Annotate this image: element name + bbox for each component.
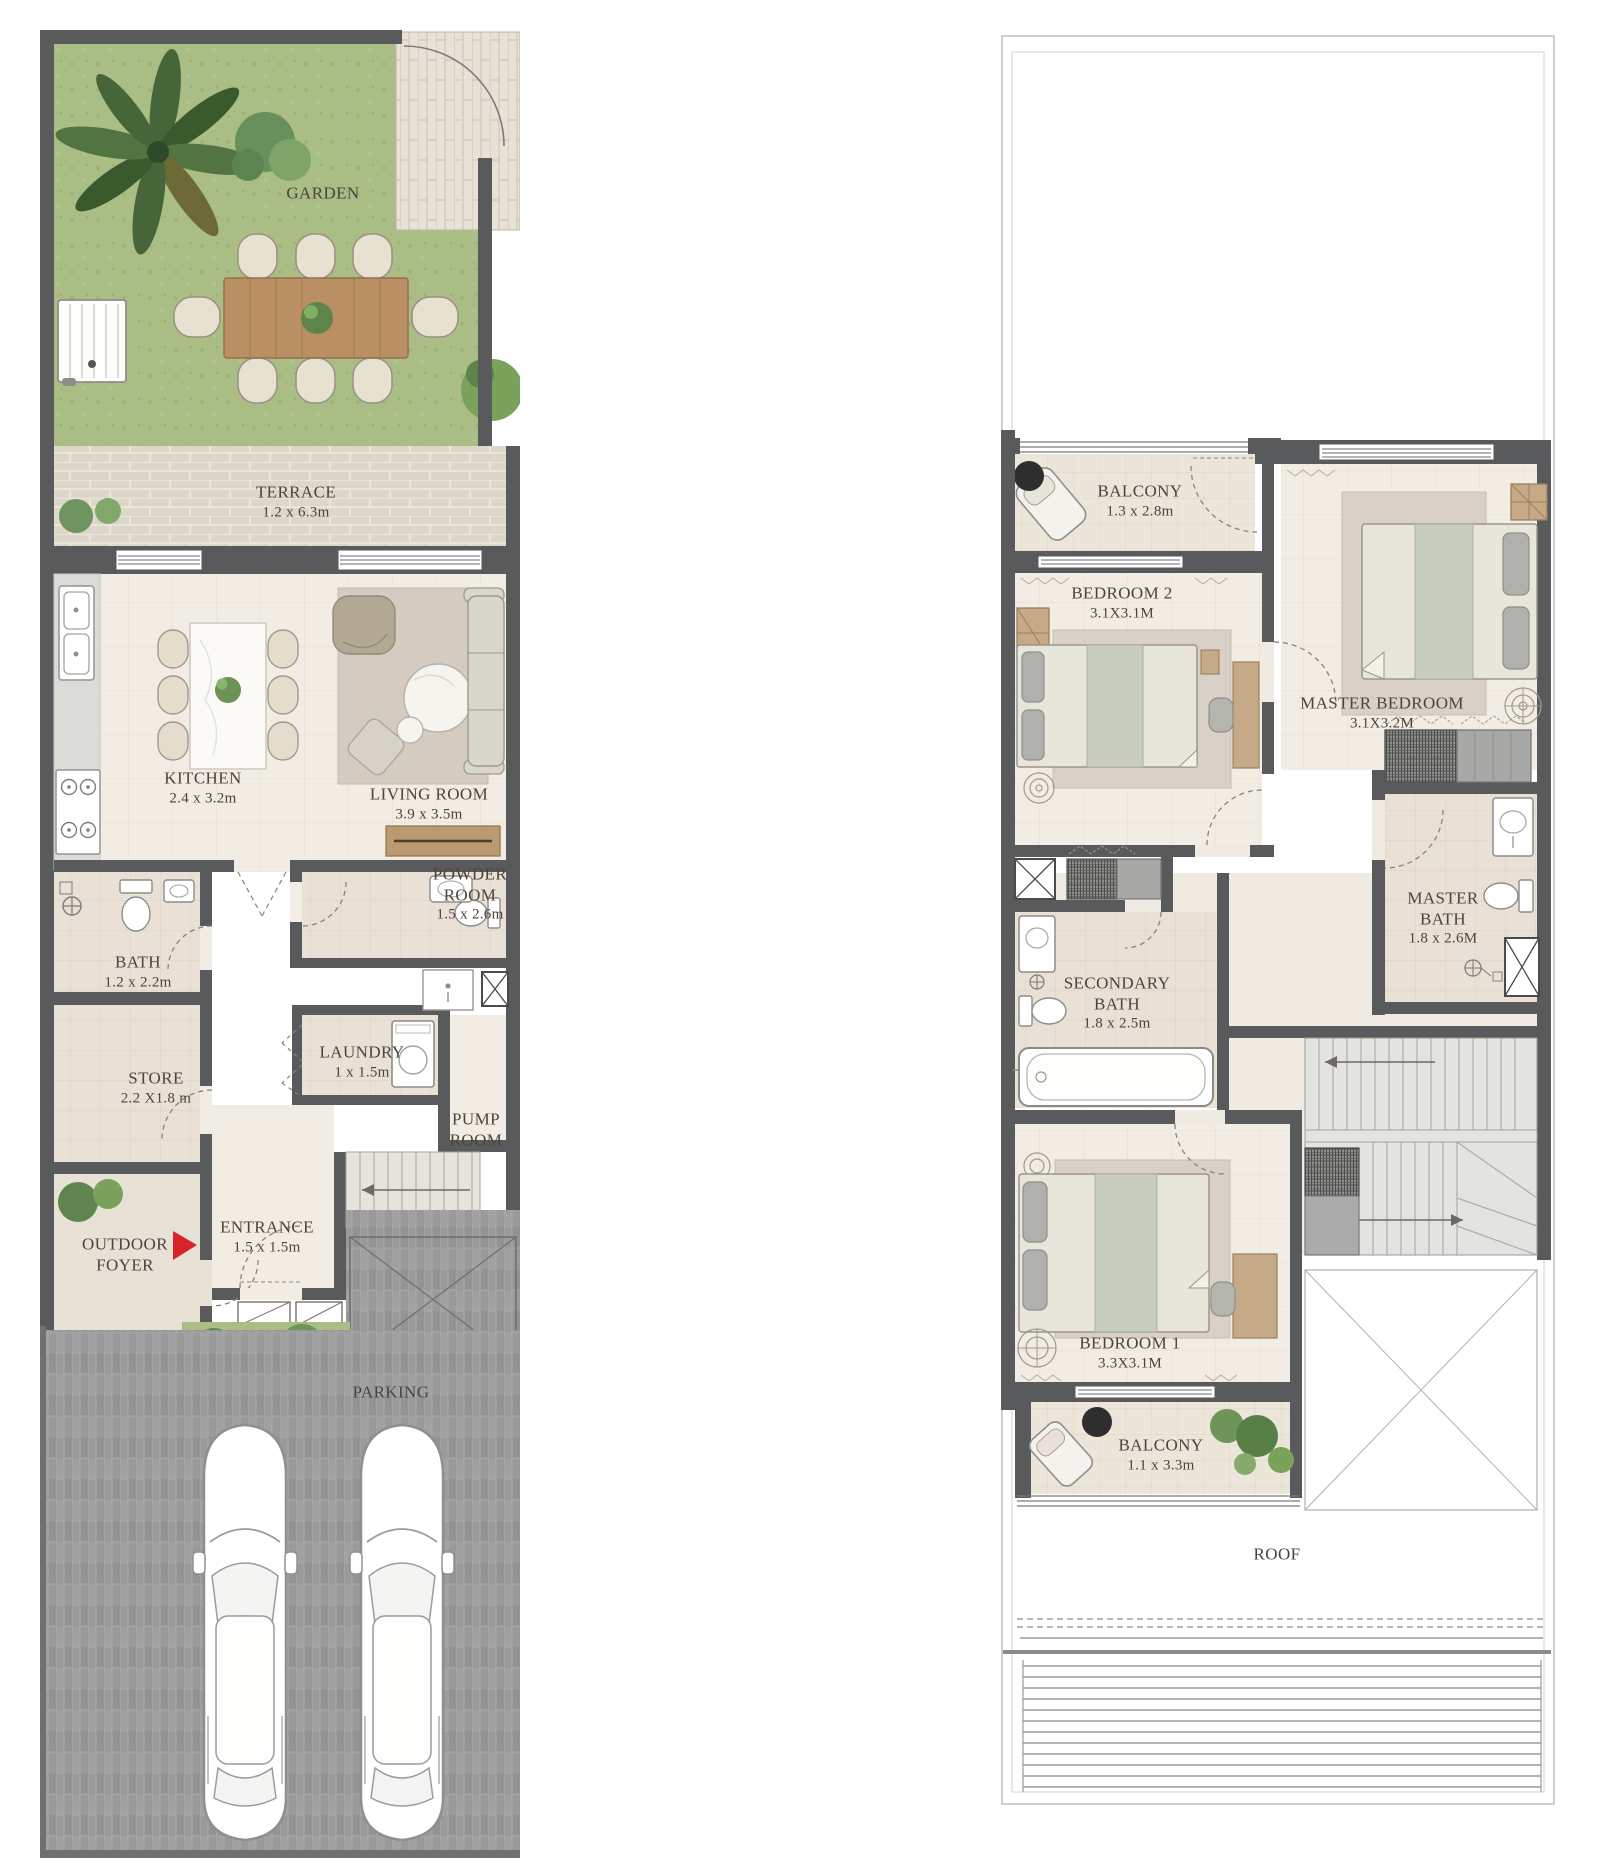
driveway bbox=[346, 1210, 520, 1334]
vanity bbox=[423, 970, 473, 1010]
room-name: POWDER ROOM bbox=[418, 864, 522, 905]
door-opening bbox=[1125, 900, 1161, 912]
room-name: ENTRANCE bbox=[220, 1218, 314, 1239]
room-dims: 2.2 X1.8 m bbox=[121, 1090, 192, 1107]
kitchen-island bbox=[158, 623, 298, 769]
room-name: PARKING bbox=[353, 1383, 430, 1404]
room-name: BALCONY bbox=[1098, 482, 1183, 503]
ceiling-fan-icon bbox=[1505, 688, 1541, 724]
room-name: SECONDARY BATH bbox=[1050, 973, 1185, 1014]
room-label-garden: GARDEN bbox=[286, 184, 359, 205]
wardrobe bbox=[1511, 484, 1547, 520]
toilet-icon bbox=[1484, 880, 1533, 912]
room-label-parking: PARKING bbox=[353, 1383, 430, 1404]
room-name: BEDROOM 2 bbox=[1071, 584, 1172, 605]
car-top-view bbox=[350, 1425, 454, 1840]
room-dims: 1.8 x 2.6M bbox=[1409, 931, 1478, 948]
room-dims: 3.1X3.2M bbox=[1350, 715, 1414, 732]
window bbox=[1319, 444, 1494, 460]
double-door-swing bbox=[238, 872, 286, 916]
room-label-store: STORE 2.2 X1.8 m bbox=[121, 1069, 192, 1108]
shaft bbox=[1505, 938, 1539, 996]
room-label-powder-room: POWDER ROOM 1.5 x 2.6m bbox=[418, 864, 522, 923]
railing bbox=[1015, 442, 1253, 452]
room-label-roof: ROOF bbox=[1254, 1545, 1301, 1566]
floor-plan-page: GARDEN TERRACE 1.2 x 6.3m KITCHEN 2.4 x … bbox=[0, 0, 1600, 1870]
room-label-outdoor-foyer: OUTDOOR FOYER bbox=[70, 1234, 180, 1275]
room-label-balcony-top: BALCONY 1.3 x 2.8m bbox=[1098, 482, 1183, 521]
sofa bbox=[464, 588, 504, 774]
sink-icon bbox=[164, 880, 194, 902]
room-dims: 3.9 x 3.5m bbox=[395, 806, 462, 823]
terrace-bush bbox=[95, 498, 121, 524]
room-dims: 1.1 x 3.3m bbox=[1127, 1457, 1194, 1474]
window bbox=[1075, 1386, 1215, 1398]
room-dims: 1.8 x 2.5m bbox=[1083, 1016, 1150, 1033]
terrace-bush bbox=[59, 499, 93, 533]
room-name: BALCONY bbox=[1119, 1436, 1204, 1457]
balcony-table bbox=[1014, 461, 1044, 491]
door-opening bbox=[1195, 845, 1250, 857]
room-label-bedroom-1: BEDROOM 1 3.3X3.1M bbox=[1079, 1334, 1180, 1373]
stove-icon bbox=[56, 770, 100, 854]
room-name: GARDEN bbox=[286, 184, 359, 205]
bbq-grill-icon bbox=[58, 300, 126, 386]
roof-louvers bbox=[1003, 1619, 1551, 1792]
main-door-opening bbox=[240, 1288, 302, 1300]
room-name: PUMP ROOM bbox=[446, 1109, 506, 1150]
room-label-secondary-bath: SECONDARY BATH 1.8 x 2.5m bbox=[1050, 973, 1185, 1032]
bed-double bbox=[1017, 645, 1197, 767]
room-dims: 1.5 x 2.6m bbox=[436, 907, 503, 924]
room-label-entrance: ENTRANCE 1.5 x 1.5m bbox=[220, 1218, 314, 1257]
room-label-bedroom-2: BEDROOM 2 3.1X3.1M bbox=[1071, 584, 1172, 623]
room-dims: 1 x 1.5m bbox=[334, 1064, 389, 1081]
room-label-master-bedroom: MASTER BEDROOM 3.1X3.2M bbox=[1300, 694, 1464, 733]
room-name: BATH bbox=[115, 953, 161, 974]
toilet-icon bbox=[120, 880, 152, 931]
bed-double bbox=[1019, 1174, 1209, 1332]
tv-console bbox=[386, 826, 500, 856]
room-dims: 1.2 x 2.2m bbox=[104, 974, 171, 991]
room-name: STORE bbox=[128, 1069, 184, 1090]
door-opening bbox=[1262, 642, 1274, 702]
sprinkler-icon bbox=[1018, 1329, 1056, 1367]
room-dims: 1.2 x 6.3m bbox=[262, 504, 329, 521]
parking-area bbox=[40, 1326, 520, 1858]
room-label-master-bath: MASTER BATH 1.8 x 2.6M bbox=[1396, 888, 1491, 947]
room-name: TERRACE bbox=[256, 483, 336, 504]
nightstand bbox=[1201, 650, 1219, 674]
room-dims: 2.4 x 3.2m bbox=[169, 790, 236, 807]
room-label-laundry: LAUNDRY 1 x 1.5m bbox=[320, 1043, 405, 1082]
railing bbox=[1017, 1496, 1300, 1506]
room-name: OUTDOOR FOYER bbox=[70, 1234, 180, 1275]
room-label-terrace: TERRACE 1.2 x 6.3m bbox=[256, 483, 336, 522]
room-label-balcony-bottom: BALCONY 1.1 x 3.3m bbox=[1119, 1436, 1204, 1475]
room-label-pump-room: PUMP ROOM bbox=[446, 1109, 506, 1150]
stair-closet bbox=[1305, 1148, 1359, 1255]
room-name: MASTER BEDROOM bbox=[1300, 694, 1464, 715]
room-label-living-room: LIVING ROOM 3.9 x 3.5m bbox=[370, 785, 488, 824]
sink-icon bbox=[1493, 798, 1533, 856]
bed-double bbox=[1362, 524, 1537, 679]
room-name: BEDROOM 1 bbox=[1079, 1334, 1180, 1355]
foyer-bush bbox=[58, 1182, 98, 1222]
ground-floor-plan: GARDEN TERRACE 1.2 x 6.3m KITCHEN 2.4 x … bbox=[40, 30, 520, 1860]
door-opening bbox=[290, 882, 302, 922]
shaft bbox=[482, 972, 508, 1006]
door-opening bbox=[1372, 800, 1385, 860]
first-floor-plan: BALCONY 1.3 x 2.8m BEDROOM 2 3.1X3.1M MA… bbox=[995, 30, 1565, 1810]
balcony-table bbox=[1082, 1407, 1112, 1437]
room-dims: 3.3X3.1M bbox=[1098, 1355, 1162, 1372]
bathtub-icon bbox=[1013, 1048, 1213, 1106]
car-top-view bbox=[193, 1425, 297, 1840]
door-opening bbox=[200, 926, 212, 970]
room-name: KITCHEN bbox=[164, 769, 241, 790]
door-opening bbox=[200, 1260, 212, 1306]
kitchen-counter bbox=[54, 574, 100, 870]
room-dims: 1.5 x 1.5m bbox=[233, 1239, 300, 1256]
door-opening bbox=[200, 1086, 212, 1134]
room-label-bath: BATH 1.2 x 2.2m bbox=[104, 953, 171, 992]
room-name: LAUNDRY bbox=[320, 1043, 405, 1064]
window bbox=[1038, 556, 1183, 568]
kitchen-sink-icon bbox=[59, 586, 94, 680]
void-outline bbox=[1305, 1270, 1537, 1510]
room-dims: 3.1X3.1M bbox=[1090, 605, 1154, 622]
door-opening bbox=[1175, 1110, 1225, 1124]
room-label-kitchen: KITCHEN 2.4 x 3.2m bbox=[164, 769, 241, 808]
armchair bbox=[333, 596, 395, 654]
foyer-bush bbox=[93, 1179, 123, 1209]
staircase bbox=[1305, 1038, 1537, 1255]
room-name: MASTER BATH bbox=[1396, 888, 1491, 929]
room-name: ROOF bbox=[1254, 1545, 1301, 1566]
room-dims: 1.3 x 2.8m bbox=[1106, 503, 1173, 520]
room-name: LIVING ROOM bbox=[370, 785, 488, 806]
